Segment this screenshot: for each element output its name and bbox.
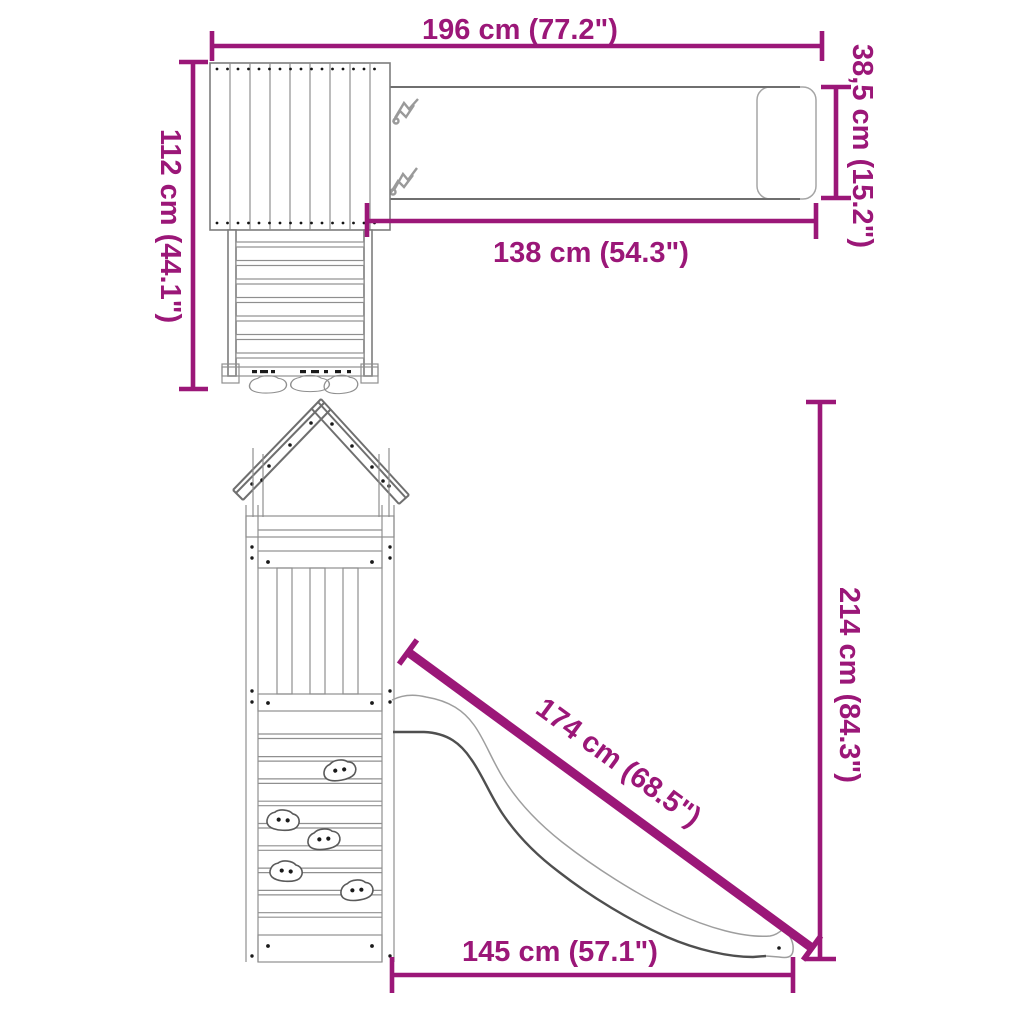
tower-roof [233,399,409,504]
frame-rail-right [364,230,372,376]
dimension-diagram-canvas: 196 cm (77.2") 112 cm (44.1") 38,5 cm (1… [0,0,1024,1024]
dimension-label: 112 cm (44.1") [154,129,186,323]
climbing-hold [266,809,300,832]
dimension-label: 196 cm (77.2") [422,14,618,46]
beam-end-cap [757,87,816,199]
base-band [258,935,382,962]
climbing-hold [269,859,303,883]
dimension-label: 145 cm (57.1") [462,936,658,968]
dimension-label: 138 cm (54.3") [493,237,689,269]
balusters [277,568,358,694]
dimension-platform-depth: 112 cm (44.1") [154,62,208,389]
balustrade-top-band [258,551,382,568]
climbing-hold [340,879,373,901]
frame-rungs [236,242,364,358]
rope-doodle-icon [393,99,418,124]
access-frame [222,230,378,394]
dimension-beam-length: 138 cm (54.3") [367,203,816,269]
balustrade-bottom-band [258,694,382,711]
climbing-hold [307,828,341,851]
roof-screws [250,421,391,488]
beam-rope-doodles [390,99,418,195]
dimension-base-length: 145 cm (57.1") [392,936,793,993]
slide-surface-edge [393,732,766,957]
dimension-slide-length: 174 cm (68.5") [399,640,821,960]
dimension-label: 214 cm (84.3") [833,587,865,783]
dimension-beam-height: 38,5 cm (15.2") [821,44,878,248]
platform-deck [210,63,390,230]
top-view [210,63,816,394]
swing-beam [390,87,816,199]
dimension-beam-span: 196 cm (77.2") [212,14,822,61]
top-rail [246,516,394,537]
dimension-label: 38,5 cm (15.2") [846,44,878,248]
deck-outline [210,63,390,230]
playset-dimension-drawing: 196 cm (77.2") 112 cm (44.1") 38,5 cm (1… [0,0,1024,1024]
frame-base-screws [252,370,351,373]
slide-foot-screw [777,946,781,950]
rope-doodle-icon [390,168,417,195]
dimension-total-height: 214 cm (84.3") [806,402,865,959]
ground-anchor-blobs [250,374,359,394]
frame-rail-left [228,230,236,376]
